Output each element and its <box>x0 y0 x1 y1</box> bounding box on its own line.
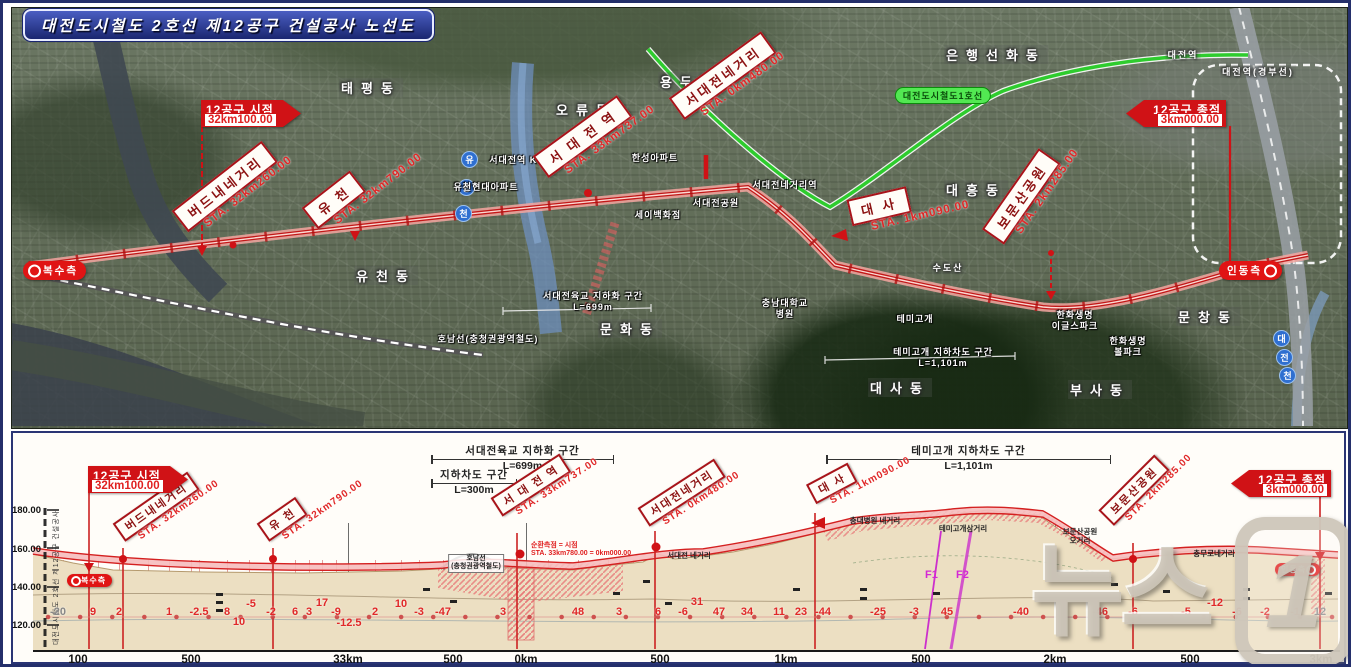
gridline <box>227 560 228 649</box>
elevation-tick-label: 180.00 <box>5 505 41 516</box>
elevation-tick-label: 120.00 <box>5 620 41 631</box>
gradient-value: 45 <box>941 606 953 618</box>
place-label: 유천현대아파트 <box>454 182 519 193</box>
gridline <box>473 560 474 649</box>
gridline <box>978 560 979 649</box>
gradient-value: 1 <box>166 606 172 618</box>
place-label: 테미고개 <box>896 314 933 325</box>
section-limit-flag: 12공구 시점 32km100.00 <box>201 100 301 127</box>
gradient-value: 6 <box>655 606 661 618</box>
place-label: 테미고개 지하차도 구간 L=1,101m <box>893 347 993 370</box>
gradient-value: 3 <box>306 606 312 618</box>
gridline <box>823 560 824 649</box>
profile-annotation: 서대전 네거리 <box>667 551 710 560</box>
direction-pill: 인동측 <box>1219 261 1282 280</box>
place-label: 세이백화점 <box>635 210 681 221</box>
distance-tick-label: 500 <box>1180 654 1199 666</box>
borehole-tick <box>665 602 672 605</box>
gridline <box>914 560 915 649</box>
bracket-label: 지하차도 구간 <box>431 467 517 482</box>
gradient-value: 10 <box>395 598 407 610</box>
direction-pill: 복수측 <box>67 574 112 587</box>
gridline <box>683 560 684 649</box>
gradient-value: 3 <box>616 606 622 618</box>
gridline <box>148 560 149 649</box>
direction-arrow-icon: 인동측 <box>1227 265 1262 277</box>
profile-annotation: 충대병원 네거리 <box>850 516 900 525</box>
gradient-value: 2 <box>116 606 122 618</box>
borehole-tick <box>423 588 430 591</box>
profile-annotation: 호남선 (충청권광역철도) <box>448 554 504 573</box>
gridline <box>779 560 780 649</box>
gradient-value: 47 <box>713 606 725 618</box>
gridline <box>1021 560 1022 649</box>
distance-tick-label: 0km <box>514 654 537 666</box>
borehole-tick <box>613 592 620 595</box>
gridline <box>578 560 579 649</box>
gridline <box>548 560 549 649</box>
gradient-value: 11 <box>773 606 785 618</box>
area-label: 유천동 <box>354 266 418 285</box>
gradient-value: -40 <box>1013 606 1029 618</box>
place-label: 한성아파트 <box>632 153 678 164</box>
fault-label: F2 <box>956 569 969 581</box>
place-label: 서대전육교 지하화 구간 L=699m <box>543 291 643 314</box>
elevation-tick-label: 140.00 <box>5 582 41 593</box>
gradient-value: -44 <box>815 606 831 618</box>
gradient-value: -5 <box>246 598 256 610</box>
gridline <box>993 560 994 649</box>
river-name-circle: 유 <box>461 151 478 168</box>
borehole-tick <box>216 593 223 596</box>
gridline <box>878 560 879 649</box>
gridline <box>191 560 192 649</box>
distance-tick-label: 500 <box>650 654 669 666</box>
flag-chainage: 3km000.00 <box>1262 483 1328 497</box>
distance-tick-label: 500 <box>911 654 930 666</box>
gradient-value: -3 <box>909 606 919 618</box>
distance-tick-label: 500 <box>443 654 462 666</box>
gradient-value: 3 <box>500 606 506 618</box>
borehole-tick <box>860 588 867 591</box>
place-label: 서대전공원 <box>693 198 739 209</box>
section-limit-flag: 12공구 종점 3km000.00 <box>1126 100 1226 127</box>
news1-watermark-text: 뉴스 <box>1031 541 1211 643</box>
gridline <box>199 560 200 649</box>
gradient-value: 6 <box>292 606 298 618</box>
distance-tick-label: 500 <box>181 654 200 666</box>
fault-label: F1 <box>925 569 938 581</box>
borehole-tick <box>450 600 457 603</box>
distance-tick-label: 100 <box>68 654 87 666</box>
gradient-value: -47 <box>435 606 451 618</box>
gridline <box>526 523 527 649</box>
direction-pill: 복수측 <box>23 261 86 280</box>
gradient-value: -2 <box>266 606 276 618</box>
area-label: 문화동 <box>598 319 662 338</box>
map-title-banner: 대전도시철도 2호선 제12공구 건설공사 노선도 <box>23 9 434 41</box>
place-label: 한화생명 볼파크 <box>1109 336 1146 359</box>
area-label: 은행선화동 <box>944 45 1048 64</box>
river-name-circle: 전 <box>1276 349 1293 366</box>
gridline <box>443 560 444 649</box>
gridline <box>348 523 349 649</box>
borehole-tick <box>860 597 867 600</box>
place-label: 호남선(충청권광역철도) <box>438 334 539 345</box>
flag-chainage: 32km100.00 <box>204 113 277 127</box>
distance-tick-label: 2km <box>1043 654 1066 666</box>
borehole-tick <box>933 592 940 595</box>
distance-tick-label: 1km <box>774 654 797 666</box>
direction-arrow-icon: 복수측 <box>43 265 78 277</box>
gradient-value: 2 <box>372 606 378 618</box>
gridline <box>419 560 420 649</box>
gradient-value: 31 <box>691 596 703 608</box>
gradient-value: -25 <box>870 606 886 618</box>
gridline <box>336 560 337 649</box>
gridline <box>947 560 948 649</box>
gridline <box>719 560 720 649</box>
gradient-value: 9 <box>90 606 96 618</box>
gradient-value: -6 <box>678 606 688 618</box>
gridline <box>63 560 64 649</box>
gridline <box>608 560 609 649</box>
area-label: 수도산 <box>931 261 966 274</box>
gridline <box>633 560 634 649</box>
gradient-value: -3 <box>414 606 424 618</box>
gradient-value: 48 <box>572 606 584 618</box>
river-name-circle: 대 <box>1273 330 1290 347</box>
gradient-value: 17 <box>316 597 328 609</box>
gridline <box>848 560 849 649</box>
profile-annotation: 순환측점 = 시점 STA. 33km780.00 = 0km000.00 <box>531 542 631 559</box>
gridline <box>119 560 120 649</box>
gradient-value: 10 <box>233 616 245 628</box>
area-label: 부사동 <box>1068 380 1132 399</box>
section-limit-flag: 12공구 시점 32km100.00 <box>88 466 188 493</box>
direction-arrow-icon: 복수측 <box>81 576 106 585</box>
gridline <box>893 560 894 649</box>
gradient-value: -2.5 <box>190 606 209 618</box>
route-map-page: 대전도시철도 2호선 제12공구 건설공사 노선도 태평동오류동용두동은행선화동… <box>0 0 1351 667</box>
profile-axis-caption: 대전도시철도 2호선 제12공구 건설공사 <box>51 510 61 645</box>
gridline <box>271 560 272 649</box>
gridline <box>671 560 672 649</box>
gridline <box>747 560 748 649</box>
gridline <box>375 560 376 649</box>
borehole-tick <box>216 601 223 604</box>
gradient-value: -12.5 <box>336 617 361 629</box>
news1-watermark-badge: 1 <box>1235 517 1351 667</box>
gridline <box>295 560 296 649</box>
gridline <box>503 560 504 649</box>
area-label: 문창동 <box>1176 307 1240 326</box>
line1-label: 대전도시철도1호선 <box>895 87 991 104</box>
flag-chainage: 3km000.00 <box>1157 113 1223 127</box>
river-name-circle: 천 <box>455 205 472 222</box>
place-label: 서대전네거리역 <box>753 180 818 191</box>
gridline <box>619 560 620 649</box>
area-label: 대전역 <box>1166 48 1201 61</box>
section-limit-flag: 12공구 종점 3km000.00 <box>1231 470 1331 497</box>
gradient-value: -20 <box>50 606 66 618</box>
gridline <box>169 560 170 649</box>
area-label: 태평동 <box>339 78 403 97</box>
distance-tick-label: 33km <box>333 654 362 666</box>
gradient-value: 23 <box>795 606 807 618</box>
place-label: 한화생명 이글스파크 <box>1052 310 1098 333</box>
borehole-tick <box>216 609 223 612</box>
area-label: 대사동 <box>868 378 932 397</box>
place-label: 충남대학교 병원 <box>762 298 808 321</box>
bracket-line <box>431 483 517 484</box>
gridline <box>801 560 802 649</box>
borehole-tick <box>643 580 650 583</box>
gradient-value: 34 <box>741 606 753 618</box>
river-name-circle: 천 <box>1279 367 1296 384</box>
borehole-tick <box>793 588 800 591</box>
flag-chainage: 32km100.00 <box>91 479 164 493</box>
profile-annotation: 테미고개삼거리 <box>939 524 987 533</box>
gradient-value: 8 <box>224 606 230 618</box>
gridline <box>309 560 310 649</box>
area-label: 대전역(경부선) <box>1220 65 1296 78</box>
elevation-tick-label: 160.00 <box>5 544 41 555</box>
